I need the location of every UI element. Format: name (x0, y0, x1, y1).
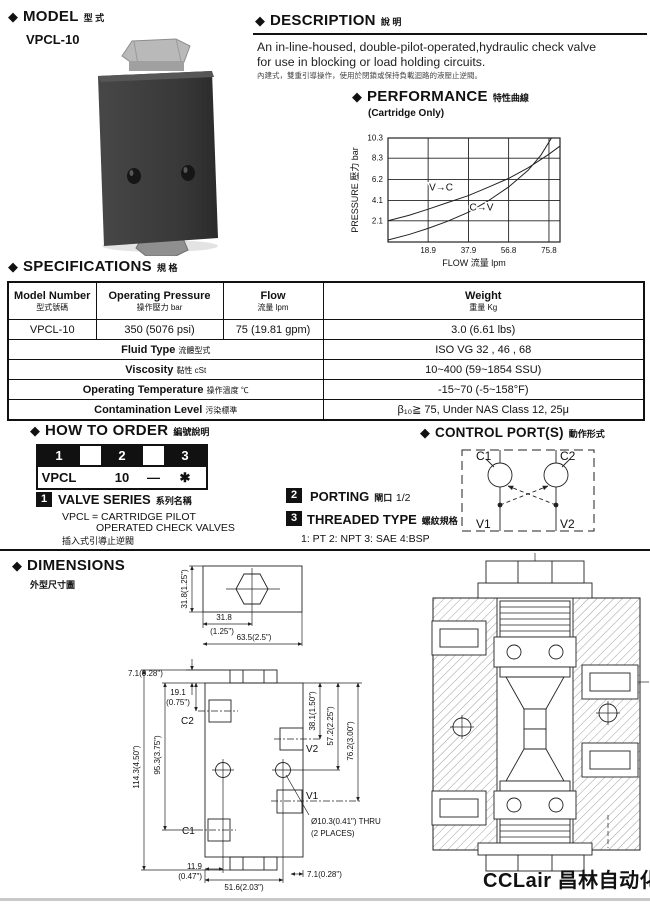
top-view-center-dim-in: (1.25") (210, 627, 234, 636)
dim-right-1: 38.1(1.50") (308, 691, 317, 731)
model-section-header: ◆ MODEL 型 式 (8, 8, 104, 25)
page-bottom-rule (0, 898, 650, 901)
how-to-order-header-cn: 編號說明 (173, 425, 209, 438)
order-code-size: 10 (101, 467, 143, 488)
table-header-row: Model Number型式號碼 Operating Pressure操作壓力 … (8, 282, 644, 320)
operating-temperature-label: Operating Temperature (83, 384, 204, 396)
table-row: Viscosity 黏性 cSt 10~400 (59~1854 SSU) (8, 360, 644, 380)
performance-header: PERFORMANCE (367, 88, 488, 105)
operating-temperature-value: -15~70 (-5~158°F) (323, 380, 644, 400)
product-photo (84, 34, 236, 256)
description-underline (253, 33, 647, 35)
control-ports-header: CONTROL PORT(S) (435, 425, 564, 440)
valve-series-line2: OPERATED CHECK VALVES (96, 522, 235, 534)
order-position-1: 1 (38, 446, 80, 465)
port-c1-label: C1 (476, 449, 492, 463)
dim-thru-note: Ø10.3(0.41") THRU (311, 817, 381, 826)
front-v1-label: V1 (306, 791, 319, 802)
cell-weight: 3.0 (6.61 lbs) (323, 320, 644, 340)
table-row: Fluid Type 流體型式 ISO VG 32 , 46 , 68 (8, 340, 644, 360)
valve-series-title: VALVE SERIES系列名稱 (58, 492, 192, 507)
performance-chart: 18.937.956.875.82.14.16.28.310.3V→CC→VFL… (344, 118, 646, 270)
specifications-section-header: ◆ SPECIFICATIONS 規 格 (8, 258, 177, 275)
series-label-vc: V→C (429, 183, 453, 194)
top-view-width-dim: 63.5(2.5") (237, 633, 272, 642)
fluid-type-label: Fluid Type (121, 344, 175, 356)
order-code-thread: ✱ (164, 467, 206, 488)
model-header: MODEL (23, 8, 79, 25)
dim-bottom-left1: 11.9 (187, 862, 203, 871)
how-to-order-section-header: ◆ HOW TO ORDER 編號說明 (30, 422, 209, 439)
diamond-icon: ◆ (8, 260, 18, 273)
dim-bottom-width: 51.6(2.03") (224, 883, 264, 892)
cell-model: VPCL-10 (8, 320, 96, 340)
y-axis-label: PRESSURE 壓力 bar (349, 147, 360, 233)
description-line1: An in-line-housed, double-pilot-operated… (257, 40, 596, 55)
how-to-order-header: HOW TO ORDER (45, 422, 168, 439)
item2-badge: 2 (286, 488, 302, 503)
specifications-header-cn: 規 格 (157, 261, 178, 274)
top-view-center-dim: 31.8 (216, 613, 232, 622)
svg-text:4.1: 4.1 (372, 196, 384, 205)
order-code-positions: 1 2 3 (38, 446, 206, 467)
diamond-icon: ◆ (420, 426, 430, 439)
svg-text:10.3: 10.3 (367, 134, 383, 143)
svg-text:37.9: 37.9 (461, 246, 477, 255)
order-position-3: 3 (164, 446, 206, 465)
order-code-series: VPCL (38, 467, 80, 488)
fluid-type-value: ISO VG 32 , 46 , 68 (323, 340, 644, 360)
port-v1-label: V1 (476, 517, 491, 531)
dim-left-outer: 114.3(4.50") (132, 745, 141, 789)
description-section-header: ◆ DESCRIPTION 說 明 (255, 12, 401, 29)
control-ports-section-header: ◆ CONTROL PORT(S) 動作形式 (420, 425, 605, 440)
diamond-icon: ◆ (352, 90, 362, 103)
dim-right-3: 76.2(3.00") (346, 721, 355, 761)
description-line-cn: 內建式，雙重引導操作，使用於閉鎖或保持負載迴路的液壓止逆閥。 (257, 70, 482, 81)
control-ports-header-cn: 動作形式 (569, 427, 605, 440)
dim-bottom-left2: (0.47") (178, 872, 202, 881)
top-view-drawing: 31.8(1.25") 31.8 (1.25") 63.5(2.5") (176, 556, 308, 652)
col-weight: Weight (326, 290, 642, 302)
port-c2-label: C2 (560, 449, 576, 463)
order-code-dash: — (143, 467, 164, 488)
col-flow: Flow (226, 290, 321, 302)
x-axis-label: FLOW 流量 lpm (442, 257, 506, 268)
model-number: VPCL-10 (26, 32, 79, 47)
model-header-cn: 型 式 (84, 11, 105, 24)
series-label-cv: C→V (469, 203, 493, 214)
front-view-drawing: 7.1(0.28") 19.1 (0.75") C2 C1 V2 V1 95.3… (126, 655, 432, 906)
description-header: DESCRIPTION (270, 12, 376, 29)
description-header-cn: 說 明 (381, 15, 402, 28)
dimensions-section-header: ◆ DIMENSIONS (12, 557, 125, 574)
svg-text:6.2: 6.2 (372, 175, 384, 184)
description-line2: for use in blocking or load holding circ… (257, 55, 485, 70)
dim-c2-offset1: 19.1 (170, 688, 186, 697)
col-model-number: Model Number (11, 290, 94, 302)
diamond-icon: ◆ (8, 10, 18, 23)
table-row: Operating Temperature 操作溫度 ℃ -15~70 (-5~… (8, 380, 644, 400)
svg-text:18.9: 18.9 (420, 246, 436, 255)
performance-section-header: ◆ PERFORMANCE 特性曲線 (352, 88, 529, 105)
porting-title: PORTING閘口 1/2 (310, 489, 410, 504)
dimensions-header: DIMENSIONS (27, 557, 125, 574)
table-row: VPCL-10 350 (5076 psi) 75 (19.81 gpm) 3.… (8, 320, 644, 340)
dim-bottom-right: 7.1(0.28") (307, 870, 342, 879)
svg-text:8.3: 8.3 (372, 154, 384, 163)
threaded-type-title: THREADED TYPE螺紋規格 (307, 512, 458, 527)
table-row: Contamination Level 污染標準 β₁₀≧ 75, Under … (8, 400, 644, 421)
col-operating-pressure: Operating Pressure (99, 290, 221, 302)
dim-right-2: 57.2(2.25") (326, 706, 335, 746)
port-v2-label: V2 (560, 517, 575, 531)
performance-header-cn: 特性曲線 (493, 91, 529, 104)
svg-text:56.8: 56.8 (501, 246, 517, 255)
viscosity-label: Viscosity (125, 364, 173, 376)
valve-series-line-cn: 插入式引導止逆閥 (62, 534, 134, 547)
svg-text:75.8: 75.8 (541, 246, 557, 255)
diamond-icon: ◆ (12, 559, 22, 572)
viscosity-value: 10~400 (59~1854 SSU) (323, 360, 644, 380)
item3-badge: 3 (286, 511, 302, 526)
datasheet-page: ◆ MODEL 型 式 VPCL-10 ◆ DESCRIPTION 說 明 An… (0, 0, 650, 906)
brand-logo: CCLair 昌林自动化 (483, 864, 650, 893)
dim-c2-offset2: (0.75") (166, 698, 190, 707)
front-v2-label: V2 (306, 744, 319, 755)
top-view-height-dim: 31.8(1.25") (180, 569, 189, 609)
order-code-values: VPCL 10 — ✱ (38, 467, 206, 488)
front-c2-label: C2 (181, 716, 194, 727)
specifications-header: SPECIFICATIONS (23, 258, 152, 275)
dim-thru-note2: (2 PLACES) (311, 829, 355, 838)
diamond-icon: ◆ (30, 424, 40, 437)
cell-flow: 75 (19.81 gpm) (223, 320, 323, 340)
cell-pressure: 350 (5076 psi) (96, 320, 223, 340)
porting-size: 1/2 (396, 492, 411, 504)
section-divider (0, 549, 650, 551)
order-code-box: 1 2 3 VPCL 10 — ✱ (36, 444, 208, 490)
front-c1-label: C1 (182, 826, 195, 837)
order-position-2: 2 (101, 446, 143, 465)
diamond-icon: ◆ (255, 14, 265, 27)
cross-section-drawing (430, 553, 650, 906)
control-ports-schematic: C1 C2 V1 V2 (452, 443, 607, 543)
dim-left-inner: 95.3(3.75") (153, 735, 162, 775)
svg-text:2.1: 2.1 (372, 216, 384, 225)
threaded-type-options: 1: PT 2: NPT 3: SAE 4:BSP (301, 533, 430, 545)
dimensions-header-cn: 外型尺寸圖 (30, 578, 75, 591)
item1-badge: 1 (36, 492, 52, 507)
specifications-table: Model Number型式號碼 Operating Pressure操作壓力 … (7, 281, 645, 421)
contamination-level-label: Contamination Level (94, 404, 202, 416)
contamination-level-value: β₁₀≧ 75, Under NAS Class 12, 25μ (323, 400, 644, 421)
